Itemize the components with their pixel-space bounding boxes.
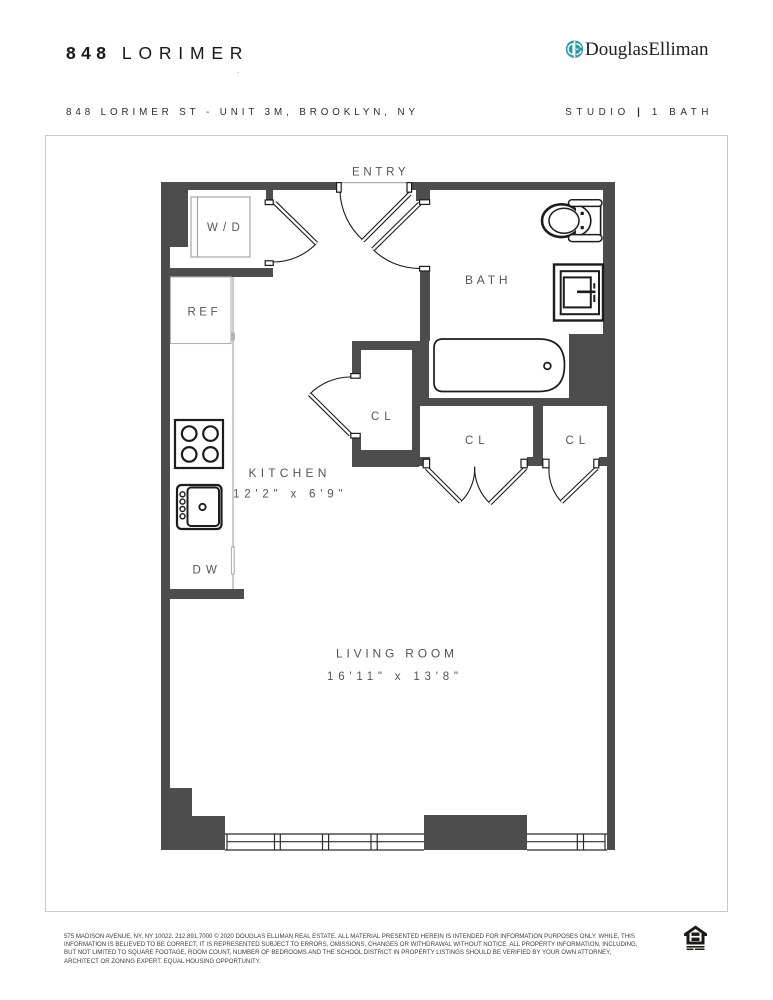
svg-text:REF: REF [188, 307, 222, 319]
svg-text:CL: CL [465, 435, 490, 447]
svg-text:16'11" x 13'8": 16'11" x 13'8" [327, 671, 463, 683]
svg-text:ENTRY: ENTRY [352, 167, 409, 179]
svg-text:W / D: W / D [207, 222, 241, 234]
svg-text:LIVING ROOM: LIVING ROOM [336, 647, 458, 661]
svg-text:BATH: BATH [465, 273, 511, 287]
svg-text:12'2" x 6'9": 12'2" x 6'9" [233, 489, 347, 501]
svg-text:CL: CL [566, 435, 591, 447]
svg-text:KITCHEN: KITCHEN [249, 466, 331, 480]
svg-text:CL: CL [371, 411, 396, 423]
svg-text:DW: DW [193, 565, 223, 577]
